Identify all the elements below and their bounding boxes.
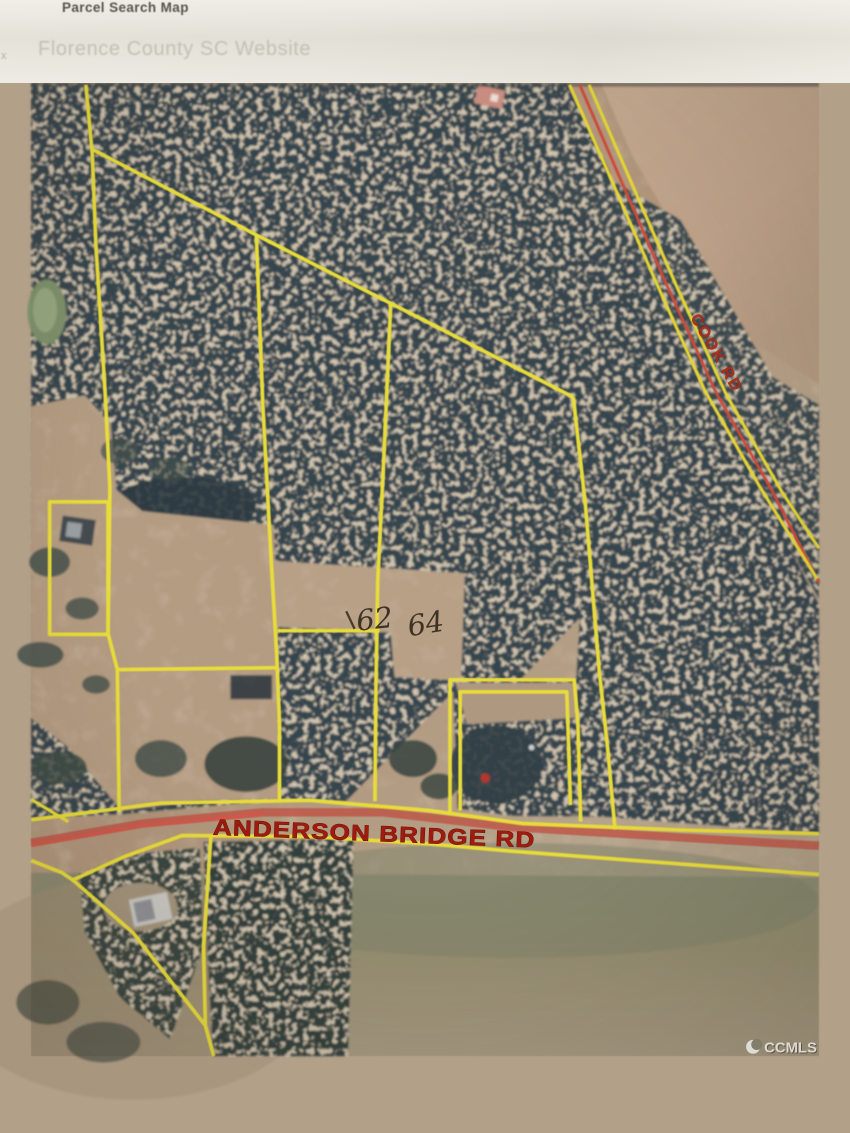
aerial-parcel-map: COOK RD ANDERSON BRIDGE RD 62 64 CCMLS C… bbox=[0, 83, 850, 1133]
aerial-map-photo: COOK RD ANDERSON BRIDGE RD 62 64 CCMLS C… bbox=[0, 83, 850, 1133]
photo-vignette bbox=[31, 83, 819, 1056]
parcel-map-screenshot: Parcel Search Map Florence County SC Web… bbox=[0, 0, 850, 1133]
page-title: Parcel Search Map bbox=[62, 0, 189, 15]
edge-text-fragment: x bbox=[1, 50, 7, 62]
page-header: Parcel Search Map Florence County SC Web… bbox=[0, 0, 850, 83]
site-link-text: Florence County SC Website bbox=[38, 38, 311, 61]
